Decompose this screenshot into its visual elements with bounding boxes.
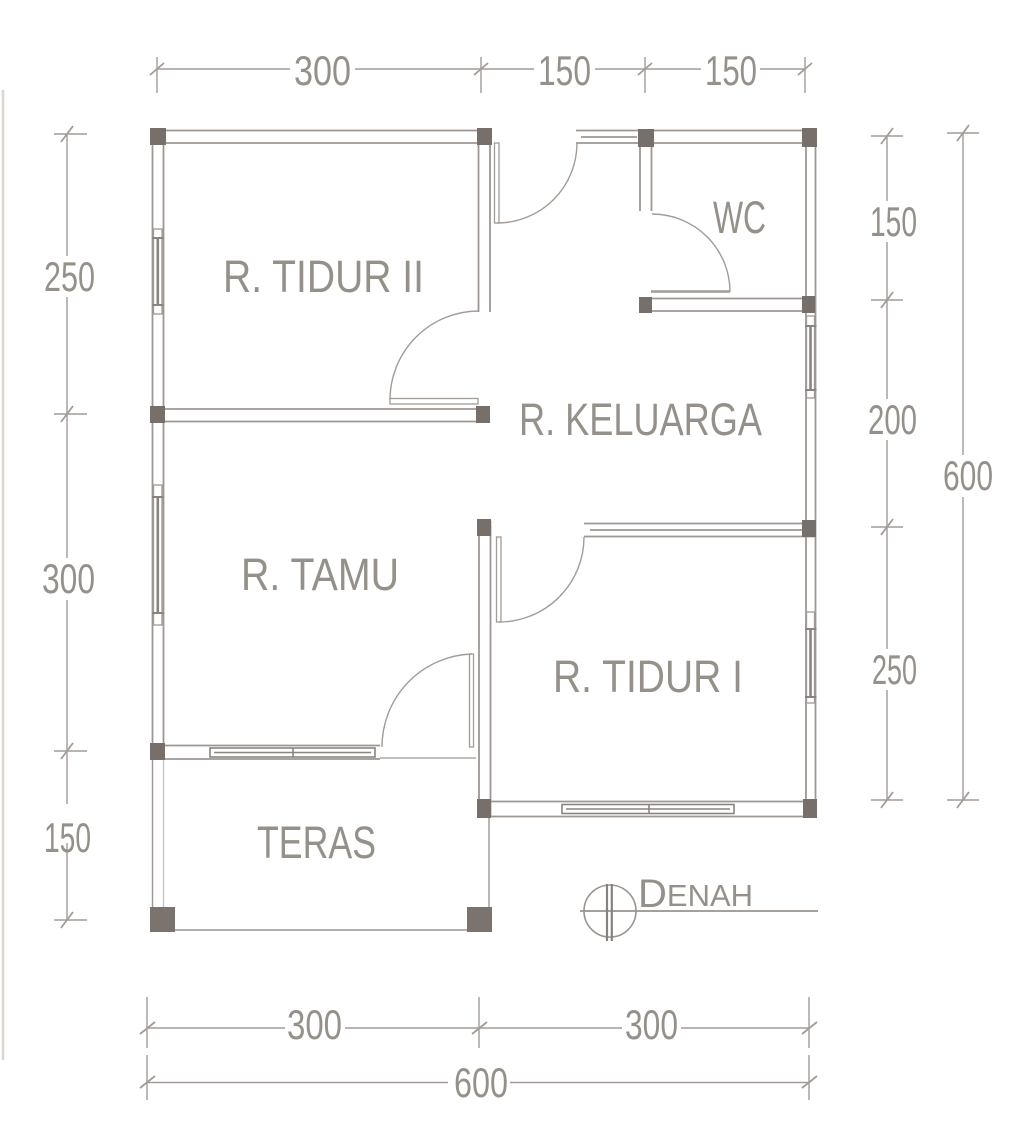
svg-text:WC: WC bbox=[713, 192, 766, 243]
svg-text:DENAH: DENAH bbox=[638, 872, 753, 916]
svg-text:R. TIDUR II: R. TIDUR II bbox=[223, 251, 424, 302]
svg-text:150: 150 bbox=[705, 47, 757, 94]
svg-text:300: 300 bbox=[287, 1001, 342, 1048]
svg-text:R. TIDUR I: R. TIDUR I bbox=[553, 651, 743, 702]
svg-text:250: 250 bbox=[872, 646, 917, 693]
svg-text:300: 300 bbox=[625, 1001, 678, 1048]
svg-text:150: 150 bbox=[44, 814, 91, 861]
svg-text:R. KELUARGA: R. KELUARGA bbox=[519, 394, 762, 445]
svg-text:R. TAMU: R. TAMU bbox=[241, 549, 399, 600]
svg-text:150: 150 bbox=[870, 198, 917, 245]
svg-text:300: 300 bbox=[294, 47, 351, 94]
svg-text:250: 250 bbox=[44, 253, 95, 300]
svg-text:600: 600 bbox=[454, 1059, 508, 1106]
svg-text:150: 150 bbox=[538, 47, 591, 94]
svg-text:300: 300 bbox=[42, 555, 95, 602]
svg-text:600: 600 bbox=[943, 452, 993, 499]
svg-text:200: 200 bbox=[868, 396, 917, 443]
svg-text:TERAS: TERAS bbox=[257, 817, 376, 868]
